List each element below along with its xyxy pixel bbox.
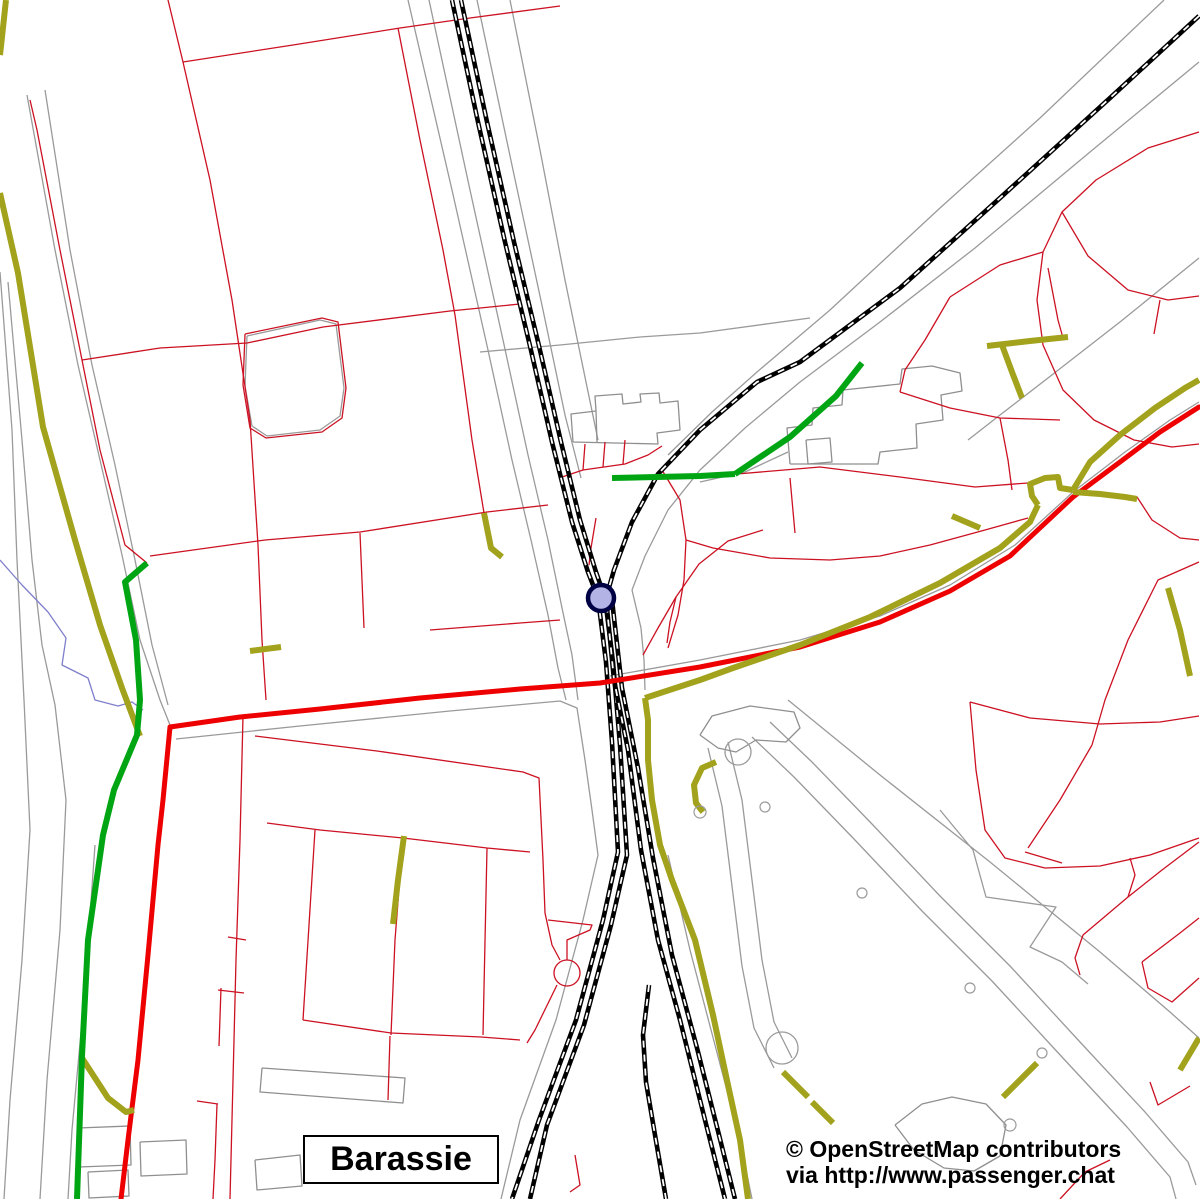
plot-boundaries-red-line — [255, 736, 560, 960]
plot-boundaries-red-line — [1137, 497, 1199, 540]
plot-boundaries-red-line — [950, 252, 1043, 297]
footpath-green — [77, 363, 862, 1199]
station-marker[interactable] — [588, 585, 614, 611]
gray-buildings-line — [700, 706, 800, 752]
track-olive-paths-line — [812, 1102, 833, 1123]
gray-boundaries-line — [0, 272, 30, 1199]
plot-boundaries-red-line — [303, 830, 315, 1020]
plot-boundaries-red-line — [1083, 842, 1199, 935]
gray-boundaries-line — [45, 90, 168, 705]
plot-boundaries-red-line — [527, 985, 557, 1043]
track-olive-paths-line — [645, 505, 1038, 698]
gray-boundaries-line — [477, 0, 581, 478]
plot-boundaries-red-line — [737, 467, 1028, 487]
attribution-line2[interactable]: via http://www.passenger.chat — [786, 1162, 1200, 1188]
golf-feature-circle — [1037, 1048, 1047, 1058]
track-olive-paths-line — [0, 193, 140, 736]
gray-buildings-line — [571, 393, 680, 444]
gray-boundaries-line — [770, 722, 1196, 1185]
plot-boundaries-red-line — [1025, 852, 1062, 863]
plot-boundaries-red-line — [1142, 918, 1199, 962]
gray-boundaries-line — [245, 320, 344, 436]
plot-boundaries-red-line — [1037, 132, 1199, 447]
place-label-box: Barassie — [303, 1135, 499, 1184]
railway-tracks-line — [606, 16, 1199, 1199]
track-olive-paths-line — [1003, 1063, 1037, 1097]
track-olive-paths-line — [393, 836, 404, 924]
plot-boundaries-red-line — [1075, 935, 1083, 975]
plot-boundaries-red-line — [430, 620, 560, 630]
gray-boundaries-line — [752, 737, 1176, 1199]
place-label-text: Barassie — [330, 1140, 472, 1179]
gray-boundaries-line — [8, 282, 66, 1199]
track-olive-paths-line — [484, 513, 502, 557]
railway-tracks-line — [643, 985, 666, 1199]
gray-buildings-line — [260, 1068, 405, 1103]
gray-boundaries-line — [788, 700, 1199, 1038]
plot-boundaries-red-line — [1154, 300, 1160, 334]
plot-boundaries-red-line — [183, 62, 266, 700]
plot-boundaries-red-line — [1028, 745, 1092, 848]
plot-boundaries-red-line — [662, 470, 686, 648]
plot-boundaries-red-line — [213, 1104, 217, 1199]
plot-boundaries-red-line — [548, 920, 592, 960]
gray-boundaries-line — [728, 742, 792, 1058]
footpath-green-line — [612, 474, 735, 478]
track-olive-paths-line — [82, 1058, 134, 1112]
railway-tracks — [452, 0, 1199, 1199]
map-canvas[interactable] — [0, 0, 1200, 1199]
gray-boundaries-line — [408, 0, 566, 700]
plot-boundaries-red-line — [643, 530, 763, 655]
plot-boundaries-red-line — [583, 444, 585, 470]
track-olive-paths-line — [1002, 345, 1022, 398]
track-olive-paths-line — [1073, 492, 1137, 499]
plot-boundaries-red-line — [197, 1101, 218, 1104]
golf-feature-circle — [965, 983, 975, 993]
plot-boundaries-red-line — [570, 1155, 580, 1192]
gray-buildings-line — [806, 438, 832, 464]
plot-boundaries-red-line — [30, 100, 147, 563]
railway-tracks-dash-overlay — [606, 16, 1199, 1199]
plot-boundaries-red-line — [1048, 268, 1063, 338]
attribution: © OpenStreetMap contributors via http://… — [786, 1136, 1200, 1188]
gray-buildings-line — [140, 1140, 187, 1176]
track-olive-paths-line — [1180, 1038, 1199, 1070]
golf-feature-circle — [857, 888, 867, 898]
plot-boundaries-red-line — [1150, 1082, 1190, 1105]
track-olive-paths-line — [1168, 588, 1190, 676]
golf-feature-circle — [760, 802, 770, 812]
plot-boundaries-red-line — [218, 990, 244, 993]
plot-boundaries-red-line — [243, 318, 346, 438]
plot-boundaries-red-line — [303, 1020, 520, 1040]
track-olive-paths-line — [783, 1072, 808, 1097]
plot-boundaries-red-line — [398, 28, 484, 513]
plot-boundaries-red-line — [168, 0, 560, 62]
gray-buildings-line — [255, 1155, 302, 1190]
plot-boundaries-red-line — [1000, 418, 1012, 490]
plot-boundaries-red-line — [219, 988, 221, 1046]
gray-buildings-line — [596, 411, 597, 442]
plot-boundaries-red-line — [900, 392, 1060, 420]
attribution-line1: © OpenStreetMap contributors — [786, 1136, 1200, 1162]
pond-outline — [554, 960, 580, 986]
plot-boundaries-red-line — [483, 848, 487, 1035]
gray-boundaries-line — [940, 810, 1088, 984]
golf-feature-circle — [725, 739, 751, 765]
track-olive-paths-line — [987, 337, 1068, 346]
plot-boundaries-red-line — [388, 1036, 390, 1100]
plot-boundaries-red-line — [230, 716, 243, 1199]
map-viewport: Barassie © OpenStreetMap contributors vi… — [0, 0, 1200, 1199]
plot-boundaries-red-line — [267, 823, 530, 852]
plot-boundaries-red-line — [360, 533, 364, 628]
plot-boundaries-red-line — [970, 702, 1199, 724]
track-olive-paths-line — [1073, 380, 1199, 490]
plot-boundaries-red-line — [790, 478, 795, 533]
plot-boundaries-red-line — [1128, 858, 1135, 897]
plot-boundaries-red-line — [603, 442, 605, 467]
plot-boundaries-red-line — [900, 297, 950, 392]
track-olive-paths-line — [0, 0, 6, 55]
gray-buildings — [78, 366, 1006, 1198]
road-main-red-line — [121, 727, 170, 1199]
track-olive-paths-line — [250, 647, 281, 651]
footpath-green-line — [735, 363, 862, 474]
plot-boundaries-red-line — [1062, 212, 1199, 300]
gray-boundaries-line — [668, 0, 1164, 455]
plot-boundaries-red-line — [970, 702, 1199, 868]
track-olive-paths-line — [952, 516, 980, 528]
